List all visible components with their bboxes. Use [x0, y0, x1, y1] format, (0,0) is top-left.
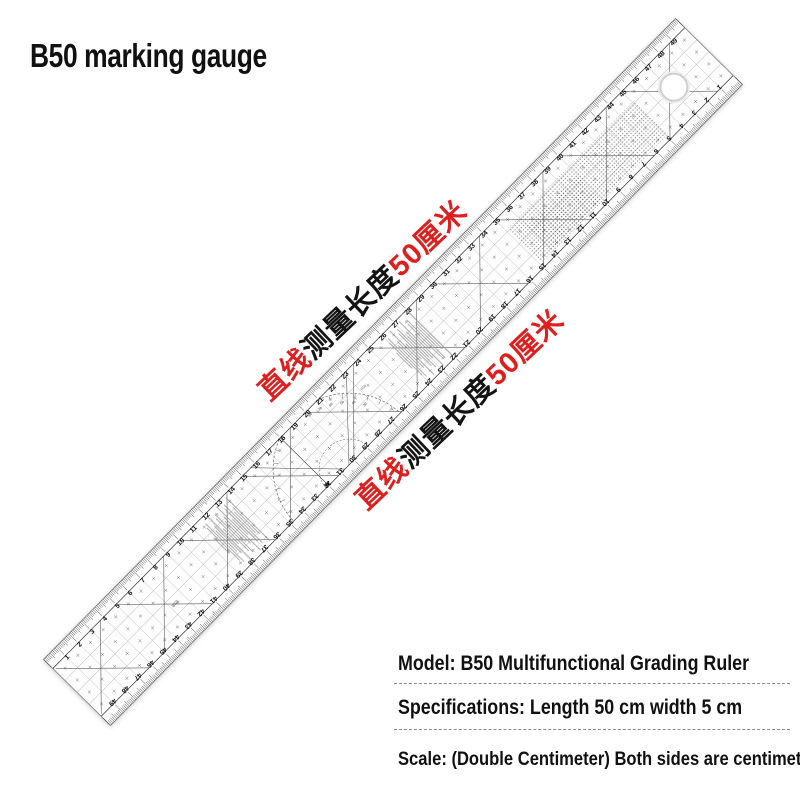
spec-model-line: Model: B50 Multifunctional Grading Ruler	[398, 652, 749, 676]
spec-dimensions-line: Specifications: Length 50 cm width 5 cm	[398, 696, 742, 720]
product-image: B50 marking gauge 3040506070801122334455…	[0, 0, 800, 800]
dashed-divider	[394, 729, 790, 730]
spec-scale-line: Scale: (Double Centimeter) Both sides ar…	[398, 748, 800, 770]
dashed-divider	[394, 683, 790, 684]
ruler-graphic: 3040506070801122334455667788991010111112…	[0, 0, 800, 800]
